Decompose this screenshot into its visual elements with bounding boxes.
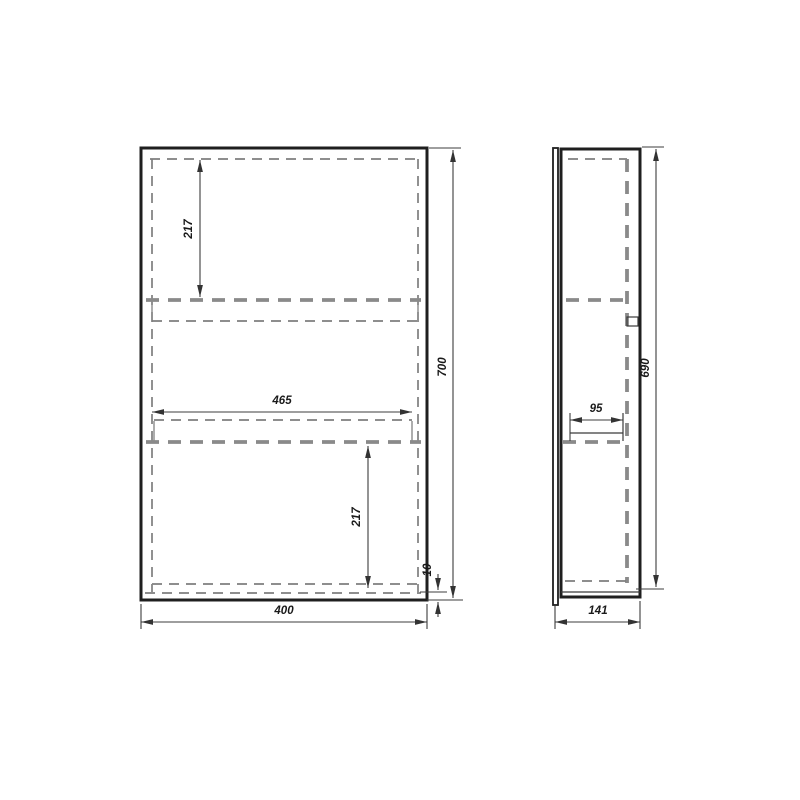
side-carcass-outline	[561, 149, 640, 597]
front-dimensions: 217 465 217 700 10 400	[141, 148, 463, 629]
dim-label-overall-width: 400	[273, 605, 294, 617]
side-door-panel	[553, 148, 558, 605]
dim-label-bottom-panel-thickness: 10	[422, 563, 434, 576]
side-dimensions: 95 690 141	[555, 147, 664, 629]
front-view: 217 465 217 700 10 400	[141, 148, 463, 629]
dim-label-shelf-width: 465	[271, 395, 292, 407]
cabinet-technical-drawing: 217 465 217 700 10 400	[0, 0, 800, 800]
dim-label-overall-depth: 141	[588, 605, 607, 617]
drawing-sheet: 217 465 217 700 10 400	[0, 0, 800, 800]
dim-label-inner-height: 690	[640, 358, 652, 378]
dim-label-upper-shelf-drop: 217	[183, 219, 195, 240]
side-hidden-lines	[563, 159, 630, 583]
side-view: 95 690 141	[553, 147, 664, 629]
dim-label-overall-height: 700	[437, 357, 449, 377]
dim-label-shelf-depth: 95	[590, 403, 603, 415]
dim-label-lower-shelf-drop: 217	[351, 507, 363, 528]
front-cabinet-outline	[141, 148, 427, 600]
